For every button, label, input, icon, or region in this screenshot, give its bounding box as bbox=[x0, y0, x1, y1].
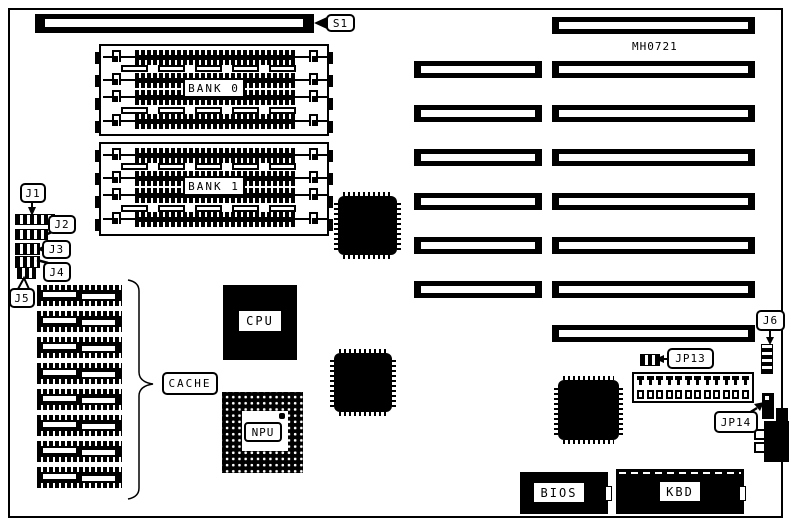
isa-slot-opening bbox=[559, 198, 748, 205]
qfp-pins bbox=[392, 358, 396, 407]
isa-slot-short bbox=[414, 105, 542, 122]
isa-slot-opening bbox=[421, 242, 535, 249]
power-pin-socket bbox=[685, 390, 692, 399]
pin1-corner-mark bbox=[279, 413, 285, 419]
callout-j5: J5 bbox=[9, 288, 35, 308]
callout-jp13-label: JP13 bbox=[675, 352, 706, 365]
isa-slot-opening bbox=[559, 242, 748, 249]
power-pin-icon bbox=[704, 376, 711, 385]
chip-window bbox=[43, 448, 76, 453]
power-pin-row-bottom bbox=[637, 390, 749, 399]
power-pin-icon bbox=[637, 376, 644, 385]
simm-tab bbox=[158, 107, 185, 114]
isa-slot-long bbox=[552, 149, 755, 166]
simm-latch-icon bbox=[309, 114, 318, 126]
power-pin-icon bbox=[675, 376, 682, 385]
qfp-pins bbox=[397, 201, 401, 250]
keyboard-din-connector-body bbox=[764, 421, 789, 462]
qfp-chip-3 bbox=[554, 376, 623, 444]
qfp-body bbox=[558, 380, 619, 440]
isa-slot-short bbox=[414, 237, 542, 254]
simm-latch-icon bbox=[112, 148, 121, 160]
cpu-chip: CPU bbox=[223, 285, 297, 360]
power-pin-icon bbox=[732, 376, 739, 385]
power-pin-socket bbox=[675, 390, 682, 399]
callout-s1: S1 bbox=[326, 14, 355, 32]
cache-chip bbox=[37, 415, 122, 436]
cache-chip bbox=[37, 311, 122, 332]
chip-window bbox=[82, 372, 115, 377]
simm-latch-icon bbox=[112, 73, 121, 85]
simm-tab bbox=[158, 163, 185, 170]
simm-latch-icon bbox=[112, 171, 121, 183]
chip-window bbox=[43, 474, 76, 479]
jumper-jp13 bbox=[640, 354, 660, 366]
din-connector-tab bbox=[754, 442, 766, 453]
simm-latch-icon bbox=[309, 212, 318, 224]
callout-j3-label: J3 bbox=[49, 243, 64, 256]
power-pin-icon bbox=[742, 376, 749, 385]
simm-latch-icon bbox=[112, 212, 121, 224]
jumper-j5 bbox=[17, 267, 36, 279]
callout-cache: CACHE bbox=[162, 372, 218, 395]
simm-latch-icon bbox=[309, 148, 318, 160]
callout-jp14-label: JP14 bbox=[721, 416, 752, 429]
simm-tab bbox=[121, 205, 148, 212]
simm-latch-icon bbox=[309, 73, 318, 85]
chip-window bbox=[43, 292, 76, 297]
simm-tab bbox=[232, 65, 259, 72]
simm-latch-icon bbox=[309, 171, 318, 183]
isa-slot-opening bbox=[421, 154, 535, 161]
kbd-controller-chip: KBD bbox=[616, 469, 744, 514]
chip-window bbox=[43, 344, 76, 349]
simm-tab bbox=[121, 107, 148, 114]
bios-label: BIOS bbox=[534, 483, 584, 502]
callout-jp13: JP13 bbox=[667, 348, 714, 369]
jumper-j2 bbox=[15, 229, 48, 240]
jumper-jp14-pin bbox=[765, 396, 769, 400]
callout-j1: J1 bbox=[20, 183, 46, 203]
simm-tab bbox=[232, 205, 259, 212]
power-pin-row-top bbox=[637, 376, 749, 385]
callout-j6-label: J6 bbox=[763, 314, 778, 327]
simm-tab-row bbox=[121, 65, 307, 72]
qfp-chip-2 bbox=[330, 349, 396, 416]
simm-tab bbox=[158, 65, 185, 72]
isa-slot-opening bbox=[559, 330, 748, 337]
cache-chip bbox=[37, 389, 122, 410]
simm-tab bbox=[232, 107, 259, 114]
simm-latch-icon bbox=[112, 50, 121, 62]
bank1-label: BANK 1 bbox=[183, 176, 245, 196]
cache-chip bbox=[37, 363, 122, 384]
memory-bank-0: BANK 0 bbox=[99, 44, 329, 136]
callout-cache-label: CACHE bbox=[168, 377, 211, 390]
simm-latch-icon bbox=[309, 90, 318, 102]
isa-slot-short bbox=[414, 61, 542, 78]
callout-j5-label: J5 bbox=[14, 292, 29, 305]
isa-slot-long bbox=[552, 61, 755, 78]
callout-j4: J4 bbox=[43, 262, 71, 282]
bios-chip: BIOS bbox=[520, 472, 608, 514]
isa-slot-long bbox=[552, 237, 755, 254]
cache-chip bbox=[37, 285, 122, 306]
kbd-socket-dashes bbox=[619, 472, 741, 474]
power-pin-icon bbox=[656, 376, 663, 385]
board-model-text: MH0721 bbox=[632, 40, 678, 53]
npu-socket-center: NPU bbox=[242, 411, 288, 451]
qfp-chip-1 bbox=[334, 192, 401, 259]
isa-slot-short bbox=[414, 193, 542, 210]
cache-chip bbox=[37, 441, 122, 462]
power-pin-socket bbox=[666, 390, 673, 399]
kbd-chip-notch bbox=[739, 486, 746, 501]
isa-slot-opening bbox=[559, 286, 748, 293]
qfp-body bbox=[338, 196, 397, 255]
simm-tab bbox=[232, 163, 259, 170]
isa-slot-opening bbox=[421, 198, 535, 205]
callout-jp14: JP14 bbox=[714, 411, 758, 433]
chip-window bbox=[82, 398, 115, 403]
power-pin-socket bbox=[742, 390, 749, 399]
isa-slot-long bbox=[552, 193, 755, 210]
simm-latch-icon bbox=[112, 188, 121, 200]
isa-slot-opening bbox=[559, 154, 748, 161]
power-pin-icon bbox=[694, 376, 701, 385]
isa-slot-opening bbox=[421, 286, 535, 293]
callout-j4-label: J4 bbox=[49, 266, 64, 279]
callout-j1-label: J1 bbox=[25, 187, 40, 200]
chip-window bbox=[82, 450, 115, 455]
simm-socket-row bbox=[135, 212, 295, 227]
cpu-label: CPU bbox=[239, 311, 281, 331]
isa-slot-opening bbox=[559, 66, 748, 73]
power-pin-icon bbox=[685, 376, 692, 385]
simm-latch-icon bbox=[309, 188, 318, 200]
simm-tab bbox=[121, 163, 148, 170]
isa-slot-opening bbox=[421, 110, 535, 117]
simm-tab bbox=[269, 65, 296, 72]
power-pin-icon bbox=[713, 376, 720, 385]
isa-slot-long bbox=[552, 105, 755, 122]
qfp-pins bbox=[619, 385, 623, 435]
npu-label: NPU bbox=[244, 422, 282, 442]
jumper-j3 bbox=[15, 243, 40, 255]
slot-s1-opening bbox=[45, 19, 303, 27]
jumper-jp14 bbox=[762, 393, 774, 419]
bios-chip-notch bbox=[605, 486, 612, 501]
chip-window bbox=[43, 370, 76, 375]
simm-latch-icon bbox=[112, 114, 121, 126]
isa-slot-opening bbox=[559, 110, 748, 117]
simm-socket-row bbox=[135, 114, 295, 129]
npu-socket: NPU bbox=[222, 392, 303, 473]
simm-tab bbox=[269, 205, 296, 212]
power-pin-socket bbox=[713, 390, 720, 399]
isa-slot-opening bbox=[559, 22, 748, 29]
simm-latch-icon bbox=[112, 90, 121, 102]
jumper-j6 bbox=[761, 344, 773, 374]
qfp-body bbox=[334, 353, 392, 412]
callout-s1-label: S1 bbox=[333, 17, 348, 30]
power-pin-icon bbox=[723, 376, 730, 385]
isa-slot-short bbox=[414, 281, 542, 298]
cache-chip bbox=[37, 337, 122, 358]
simm-tab bbox=[195, 205, 222, 212]
callout-j6: J6 bbox=[756, 310, 785, 331]
cache-chip bbox=[37, 467, 122, 488]
chip-window bbox=[43, 318, 76, 323]
power-pin-socket bbox=[637, 390, 644, 399]
isa-slot-long bbox=[552, 17, 755, 34]
isa-slot-short bbox=[414, 149, 542, 166]
power-pin-icon bbox=[666, 376, 673, 385]
simm-latch-icon bbox=[309, 50, 318, 62]
simm-tab bbox=[269, 163, 296, 170]
isa-slot-long bbox=[552, 325, 755, 342]
simm-socket-row bbox=[135, 148, 295, 163]
bank0-label: BANK 0 bbox=[183, 78, 245, 98]
chip-window bbox=[43, 396, 76, 401]
power-pin-socket bbox=[732, 390, 739, 399]
callout-j2: J2 bbox=[48, 215, 76, 234]
chip-window bbox=[43, 422, 76, 427]
isa-slot-opening bbox=[421, 66, 535, 73]
chip-window bbox=[82, 346, 115, 351]
chip-window bbox=[82, 294, 115, 299]
simm-tab bbox=[121, 65, 148, 72]
chip-window bbox=[82, 424, 115, 429]
power-pin-socket bbox=[656, 390, 663, 399]
isa-slot-column-short bbox=[414, 61, 542, 298]
callout-j2-label: J2 bbox=[54, 218, 69, 231]
simm-tab bbox=[158, 205, 185, 212]
memory-bank-1: BANK 1 bbox=[99, 142, 329, 236]
chip-window bbox=[82, 476, 115, 481]
power-pin-socket bbox=[694, 390, 701, 399]
simm-tab bbox=[269, 107, 296, 114]
power-pin-icon bbox=[647, 376, 654, 385]
power-connector bbox=[632, 372, 754, 403]
simm-tab bbox=[195, 107, 222, 114]
simm-tab-row bbox=[121, 163, 307, 170]
simm-tab-row bbox=[121, 205, 307, 212]
isa-slot-column-long bbox=[552, 17, 755, 342]
kbd-label: KBD bbox=[660, 482, 700, 501]
chip-window bbox=[82, 320, 115, 325]
callout-j3: J3 bbox=[42, 240, 71, 259]
simm-tab bbox=[195, 163, 222, 170]
simm-socket-row bbox=[135, 50, 295, 65]
simm-tab-row bbox=[121, 107, 307, 114]
slot-s1 bbox=[35, 14, 314, 33]
isa-slot-long bbox=[552, 281, 755, 298]
power-pin-socket bbox=[704, 390, 711, 399]
cache-chip-column bbox=[37, 285, 122, 488]
simm-tab bbox=[195, 65, 222, 72]
power-pin-socket bbox=[647, 390, 654, 399]
power-pin-socket bbox=[723, 390, 730, 399]
